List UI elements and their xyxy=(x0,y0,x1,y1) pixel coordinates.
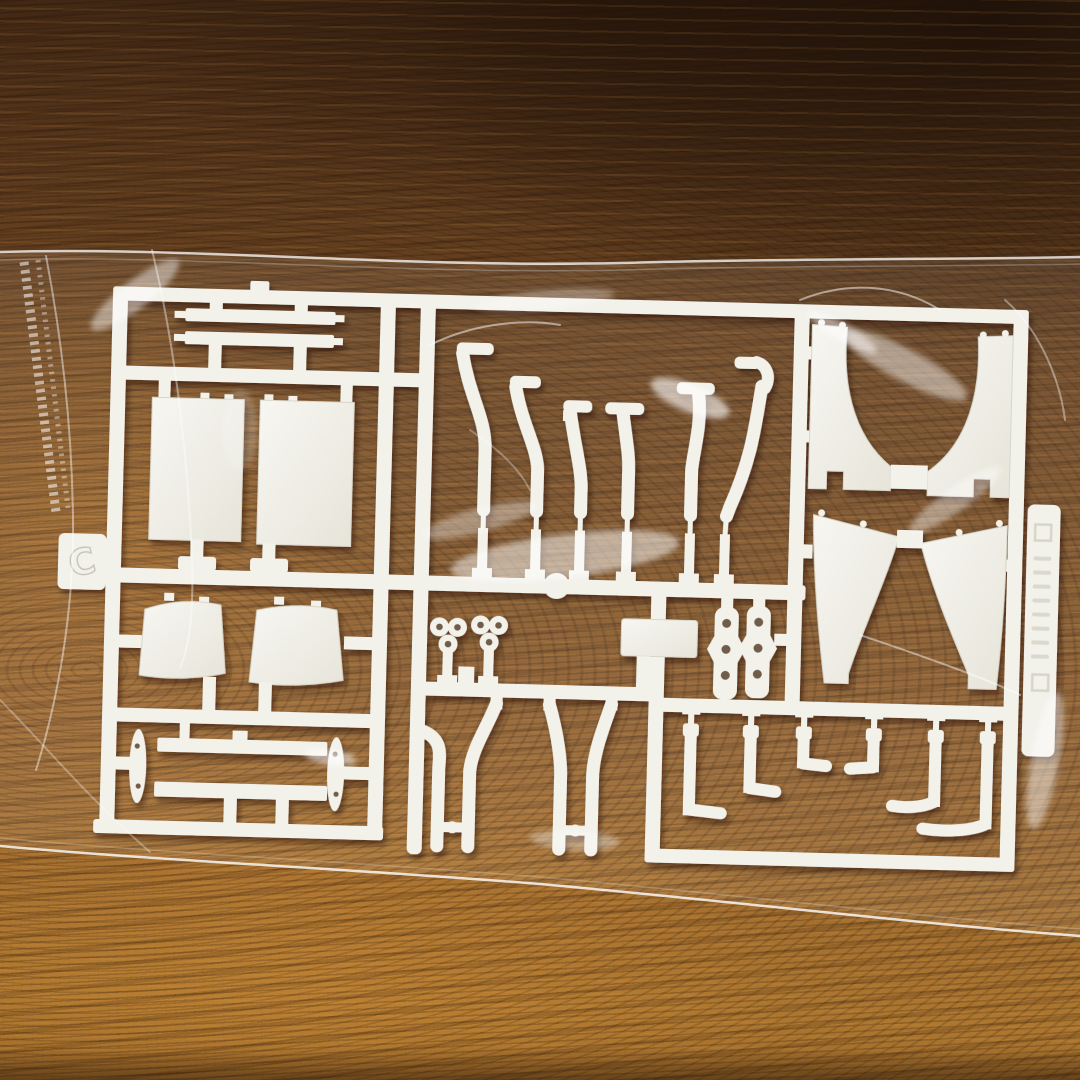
mold-nub xyxy=(250,281,269,291)
block-part xyxy=(621,619,698,658)
photo-model-kit-sprue: C xyxy=(0,0,1080,1080)
hook-4 xyxy=(850,767,873,770)
rect-panel-2 xyxy=(257,400,355,546)
sprue-letter-tab: C xyxy=(57,533,106,590)
hook-5 xyxy=(892,801,934,808)
seat-panel-2 xyxy=(249,604,345,686)
bag-and-sprue-photo: C xyxy=(0,0,1080,1080)
seat-panel-1 xyxy=(139,600,227,679)
hook-1 xyxy=(689,809,721,813)
hook-2 xyxy=(749,788,775,792)
hook-3 xyxy=(803,763,826,766)
